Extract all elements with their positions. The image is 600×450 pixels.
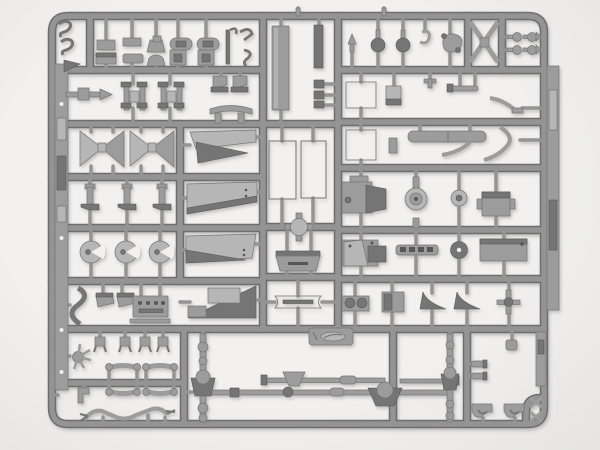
gauge-wheel-part — [405, 177, 427, 228]
engine-block-2 — [342, 240, 386, 266]
leaf-spring-strip-long — [272, 26, 289, 110]
radiator-panel-1 — [269, 141, 296, 199]
steering-column-part — [191, 334, 215, 422]
radiator-core-1 — [346, 82, 376, 108]
hub-cross-part — [285, 213, 313, 241]
dark-disc — [451, 242, 468, 259]
exhaust-s-pipe — [484, 127, 510, 160]
drive-shaft-upper — [261, 372, 385, 386]
pedal-brackets — [81, 184, 171, 210]
small-post — [389, 138, 397, 153]
wheel-hub-discs — [80, 241, 174, 263]
fender-fin-1 — [420, 292, 446, 309]
spring-shackle-pair-1 — [121, 82, 147, 110]
running-board-3 — [186, 234, 256, 263]
twin-cylinder-part — [342, 296, 369, 311]
muffler-part — [408, 131, 486, 155]
dark-wedge-with-block — [188, 286, 256, 318]
step-pads — [96, 293, 135, 307]
seat-tray-part — [276, 251, 320, 271]
hanging-clamps — [94, 337, 169, 352]
dashboard-strip — [396, 245, 438, 255]
battery-tray-part — [130, 296, 170, 323]
sprue — [52, 8, 559, 424]
x-brace-part — [470, 22, 498, 62]
spear-linkage-part — [66, 88, 112, 100]
curved-lever — [490, 98, 523, 113]
s-curve-bracket — [72, 288, 85, 324]
radiator-core-2 — [346, 130, 376, 160]
axle-cross-fitting — [497, 290, 520, 314]
side-pegs — [471, 360, 487, 380]
hook-bracket-2 — [504, 404, 524, 417]
t-fitting — [424, 79, 436, 88]
mushroom-pins — [507, 32, 541, 55]
shoe-parts — [211, 76, 248, 92]
spring-shackle-pair-2 — [158, 82, 184, 110]
ribbed-crossmember — [275, 296, 321, 308]
bowtie-panel-2 — [130, 131, 174, 167]
leaf-spring-strip-short — [314, 25, 324, 108]
hook-bracket-1 — [472, 404, 492, 417]
small-disc-1 — [451, 190, 467, 206]
sprue-photo — [0, 0, 600, 450]
small-fittings-row-top-left — [96, 29, 252, 66]
bracket-box — [382, 292, 404, 312]
spider-hub-part — [73, 344, 92, 369]
rear-axle-with-differential — [212, 382, 452, 406]
corner-hook-parts — [59, 21, 73, 55]
gearbox-box — [477, 192, 515, 216]
sway-bar-part — [80, 409, 175, 421]
logo-tag — [309, 328, 353, 345]
running-board-1 — [190, 130, 256, 163]
bowtie-panel-1 — [80, 131, 124, 167]
transfer-shaft-part — [441, 334, 459, 422]
sprue-canvas — [0, 0, 600, 450]
large-box-part — [480, 239, 527, 261]
running-board-2 — [187, 182, 257, 214]
l-bracket-part — [78, 388, 89, 403]
engine-block-1 — [342, 176, 386, 213]
small-parts-top-right — [348, 30, 462, 53]
radiator-panel-2 — [301, 141, 326, 198]
fuel-box-part — [386, 86, 401, 105]
small-knob-part — [506, 340, 517, 350]
